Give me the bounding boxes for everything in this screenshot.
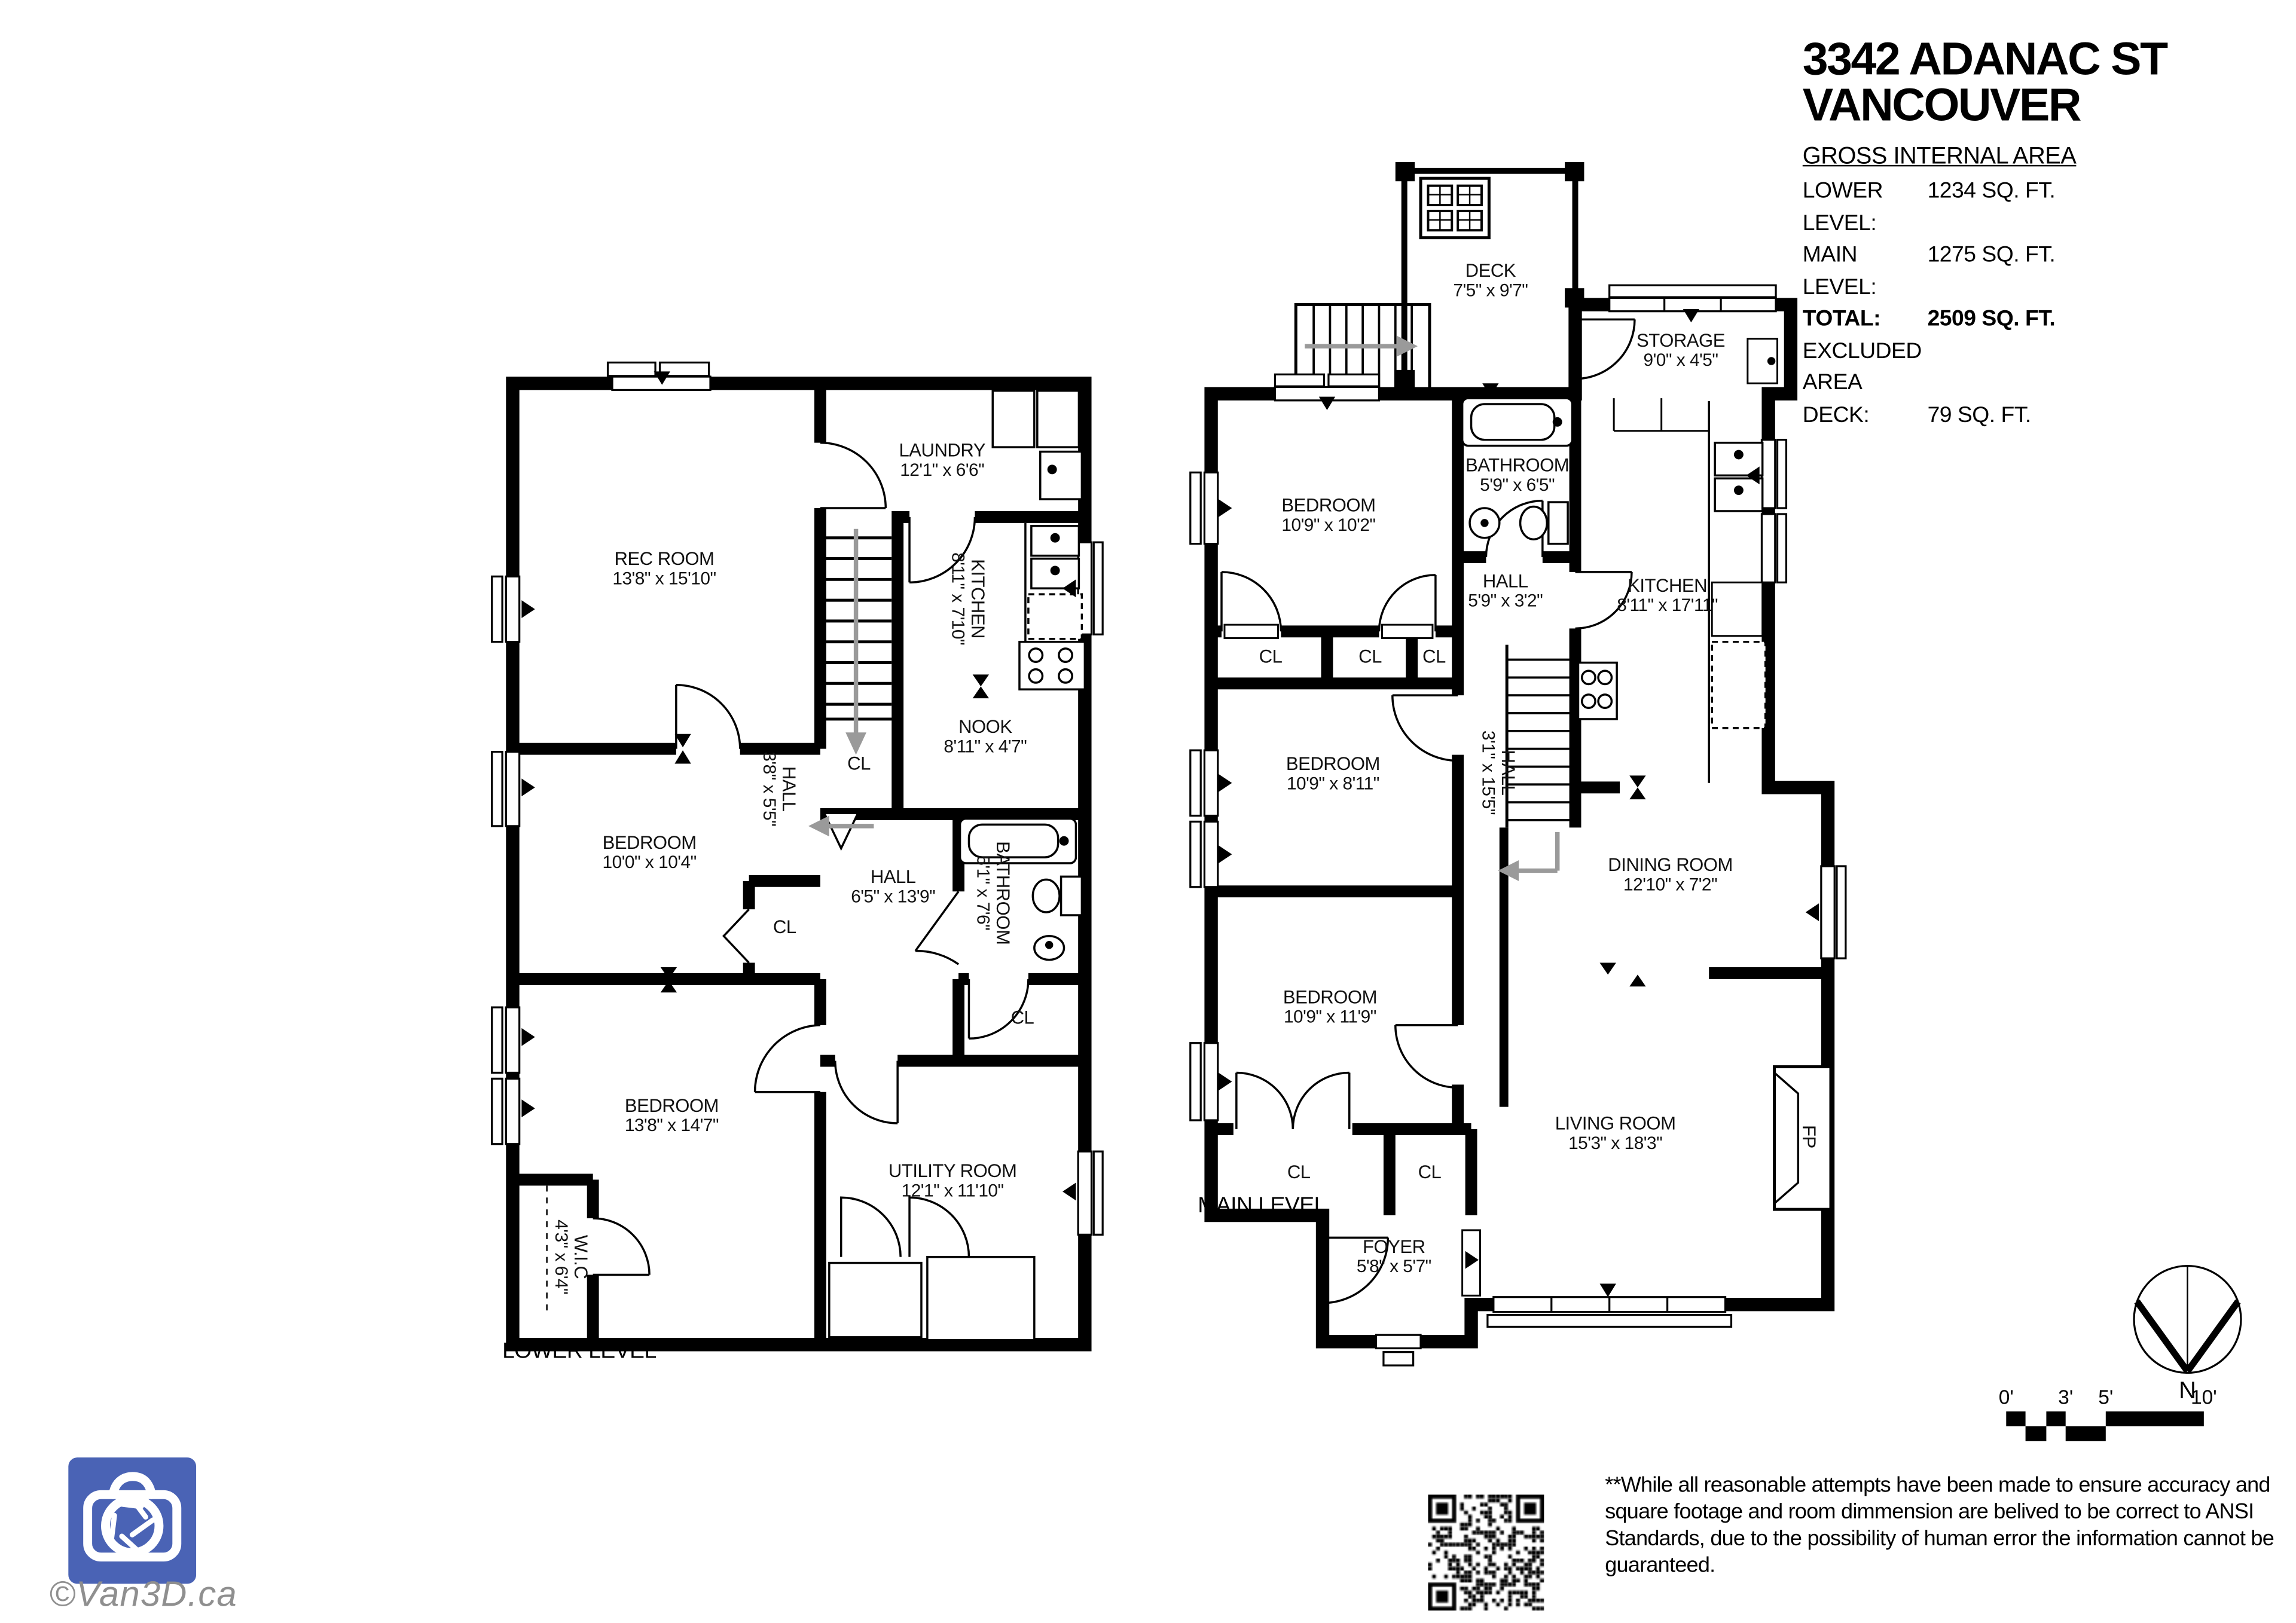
area-row-value: 2509 SQ. FT. [1928, 303, 2056, 335]
room-dimensions: 3'8" x 5'5" [758, 751, 778, 826]
room-label-main-dining-room: DINING ROOM12'10" x 7'2" [1608, 855, 1733, 895]
area-row: DECK:79 SQ. FT. [1803, 399, 2278, 430]
room-name: UTILITY ROOM [889, 1161, 1016, 1182]
area-row-value: 1234 SQ. FT. [1928, 175, 2056, 239]
room-dimensions: 13'8" x 15'10" [612, 570, 716, 589]
gross-internal-area-heading: GROSS INTERNAL AREA [1803, 144, 2077, 171]
room-dimensions: 5'9" x 3'2" [1468, 592, 1543, 612]
room-dimensions: 5'8" x 5'7" [1357, 1257, 1431, 1277]
room-label-lower-kitchen: KITCHEN8'11" x 7'10" [947, 552, 988, 645]
room-label-main-bedroom: BEDROOM10'9" x 8'11" [1286, 754, 1380, 794]
room-label-main-kitchen: KITCHEN8'11" x 17'11" [1617, 576, 1718, 616]
dishwasher-icon [1028, 594, 1082, 639]
room-name: REC ROOM [612, 549, 716, 570]
room-name: KITCHEN [1617, 576, 1718, 597]
room-dimensions: 10'0" x 10'4" [603, 853, 697, 873]
fridge-icon [1712, 642, 1765, 728]
address-line-2: VANCOUVER [1803, 82, 2278, 128]
room-dimensions: 12'1" x 11'10" [889, 1182, 1016, 1202]
scale-bar [2006, 1411, 2204, 1441]
room-name: KITCHEN [967, 552, 988, 645]
room-label-main-foyer: FOYER5'8" x 5'7" [1357, 1237, 1431, 1277]
lower-stairs [820, 529, 897, 848]
room-label-lower-rec-room: REC ROOM13'8" x 15'10" [612, 549, 716, 589]
room-label-main-hall: HALL3'1" x 15'5" [1477, 730, 1518, 815]
scale-tick-label: 10' [2191, 1386, 2217, 1408]
room-label-lower-w-i-c: W.I.C4'3" x 6'4" [550, 1219, 591, 1294]
room-name: BATHROOM [993, 841, 1013, 945]
room-dimensions: 3'1" x 15'5" [1477, 730, 1497, 815]
room-dimensions: 15'3" x 18'3" [1555, 1134, 1676, 1154]
deck [1296, 162, 1584, 389]
room-name: BEDROOM [1283, 987, 1377, 1008]
room-label-main-cl: CL [1422, 646, 1446, 667]
room-dimensions: 7'5" x 9'7" [1453, 281, 1528, 301]
room-dimensions: 8'11" x 4'7" [944, 737, 1027, 757]
area-row: MAIN LEVEL:1275 SQ. FT. [1803, 239, 2278, 303]
room-name: CL [1422, 646, 1446, 667]
room-label-lower-nook: NOOK8'11" x 4'7" [944, 717, 1027, 757]
room-label-main-cl: CL [1418, 1162, 1442, 1183]
room-name: BEDROOM [1286, 754, 1380, 775]
room-label-main-deck: DECK7'5" x 9'7" [1453, 261, 1528, 301]
utility-door-fans [841, 1197, 969, 1257]
scale-tick-label: 5' [2098, 1386, 2113, 1408]
qr-code [1428, 1494, 1544, 1610]
room-label-main-cl: CL [1259, 646, 1283, 667]
toilet-icon [1549, 502, 1568, 544]
area-row: LOWER LEVEL:1234 SQ. FT. [1803, 175, 2278, 239]
room-name: W.I.C [570, 1219, 591, 1294]
area-row-label: EXCLUDED AREA [1803, 335, 1928, 399]
area-row-value: 1275 SQ. FT. [1928, 239, 2056, 303]
room-name: STORAGE [1636, 330, 1725, 351]
area-table: LOWER LEVEL:1234 SQ. FT.MAIN LEVEL:1275 … [1803, 175, 2278, 430]
room-name: FP [1798, 1125, 1819, 1148]
bbq-grill-icon [1421, 178, 1489, 237]
area-row: EXCLUDED AREA [1803, 335, 2278, 399]
furnace-icon [927, 1257, 1034, 1340]
lower-level-caption: LOWER LEVEL [502, 1338, 657, 1364]
room-dimensions: 10'9" x 8'11" [1286, 775, 1380, 794]
washer-icon [993, 391, 1034, 447]
room-label-lower-laundry: LAUNDRY12'1" x 6'6" [899, 440, 985, 481]
room-name: LIVING ROOM [1555, 1113, 1676, 1134]
room-name: DECK [1453, 261, 1528, 282]
room-name: LAUNDRY [899, 440, 985, 461]
van3d-logo [68, 1457, 196, 1584]
room-name: HALL [778, 751, 799, 826]
room-dimensions: 12'10" x 7'2" [1608, 876, 1733, 895]
room-name: CL [1259, 646, 1283, 667]
area-row-label: MAIN LEVEL: [1803, 239, 1928, 303]
room-label-lower-hall: HALL6'5" x 13'9" [851, 867, 935, 907]
room-label-lower-utility-room: UTILITY ROOM12'1" x 11'10" [889, 1161, 1016, 1202]
room-label-lower-bathroom: BATHROOM5'1" x 7'6" [972, 841, 1013, 945]
room-dimensions: 5'9" x 6'5" [1465, 476, 1569, 496]
room-name: HALL [1468, 571, 1543, 592]
room-label-main-fp: FP [1798, 1125, 1819, 1148]
room-name: NOOK [944, 717, 1027, 738]
room-name: CL [773, 916, 796, 937]
dryer-icon [1037, 391, 1079, 447]
room-dimensions: 5'1" x 7'6" [972, 841, 992, 945]
room-name: DINING ROOM [1608, 855, 1733, 876]
room-name: CL [1358, 646, 1382, 667]
room-label-lower-cl: CL [773, 916, 796, 937]
room-name: BATHROOM [1465, 455, 1569, 476]
room-dimensions: 13'8" x 14'7" [625, 1116, 719, 1136]
area-row-label: LOWER LEVEL: [1803, 175, 1928, 239]
stove-icon [1578, 662, 1617, 719]
laundry-sink-icon [1040, 452, 1082, 500]
room-label-lower-cl: CL [1011, 1007, 1034, 1028]
room-label-main-hall: HALL5'9" x 3'2" [1468, 571, 1543, 612]
closet-bifold-door [723, 909, 749, 962]
room-name: BEDROOM [625, 1095, 719, 1116]
room-label-main-bathroom: BATHROOM5'9" x 6'5" [1465, 455, 1569, 496]
room-name: BEDROOM [603, 833, 697, 854]
stove-icon [1019, 642, 1085, 690]
room-label-lower-cl: CL [847, 753, 871, 774]
room-label-main-living-room: LIVING ROOM15'3" x 18'3" [1555, 1113, 1676, 1154]
camera-icon [68, 1457, 196, 1584]
room-dimensions: 10'9" x 10'2" [1281, 516, 1375, 536]
room-name: HALL [1498, 730, 1519, 815]
scale-tick-label: 3' [2058, 1386, 2073, 1408]
room-label-main-bedroom: BEDROOM10'9" x 10'2" [1281, 495, 1375, 536]
room-label-main-cl: CL [1287, 1162, 1311, 1183]
room-name: CL [1287, 1162, 1311, 1183]
room-label-main-bedroom: BEDROOM10'9" x 11'9" [1283, 987, 1377, 1028]
area-row-value: 79 SQ. FT. [1928, 399, 2031, 430]
room-name: BEDROOM [1281, 495, 1375, 516]
main-level-caption: MAIN LEVEL [1198, 1193, 1326, 1218]
room-label-main-cl: CL [1358, 646, 1382, 667]
room-dimensions: 9'0" x 4'5" [1636, 351, 1725, 371]
room-dimensions: 8'11" x 17'11" [1617, 596, 1718, 616]
room-dimensions: 10'9" x 11'9" [1283, 1008, 1377, 1028]
room-label-lower-bedroom: BEDROOM10'0" x 10'4" [603, 833, 697, 873]
area-row-label: TOTAL: [1803, 303, 1928, 335]
room-dimensions: 4'3" x 6'4" [550, 1219, 570, 1294]
room-name: FOYER [1357, 1237, 1431, 1258]
room-name: CL [1011, 1007, 1034, 1028]
room-name: CL [1418, 1162, 1442, 1183]
room-name: CL [847, 753, 871, 774]
address-line-1: 3342 ADANAC ST [1803, 36, 2278, 82]
room-name: HALL [851, 867, 935, 888]
scale-tick-label: 0' [1999, 1386, 2014, 1408]
floorplan-page: N REC ROOM13'8" x 15'10"LAUNDRY12'1" x 6… [0, 0, 2296, 1622]
room-label-lower-hall: HALL3'8" x 5'5" [758, 751, 799, 826]
room-dimensions: 8'11" x 7'10" [947, 552, 967, 645]
room-dimensions: 6'5" x 13'9" [851, 887, 935, 907]
room-label-lower-bedroom: BEDROOM13'8" x 14'7" [625, 1095, 719, 1136]
disclaimer-text: **While all reasonable attempts have bee… [1605, 1472, 2276, 1579]
area-row-label: DECK: [1803, 399, 1928, 430]
watermark-text: ©Van3D.ca [49, 1575, 237, 1617]
water-heater-icon [829, 1263, 921, 1337]
title-block: 3342 ADANAC ST VANCOUVER GROSS INTERNAL … [1803, 36, 2278, 431]
toilet-icon [1061, 876, 1082, 915]
room-dimensions: 12'1" x 6'6" [899, 461, 985, 481]
room-label-main-storage: STORAGE9'0" x 4'5" [1636, 330, 1725, 371]
compass: N [2134, 1266, 2241, 1404]
area-row: TOTAL:2509 SQ. FT. [1803, 303, 2278, 335]
